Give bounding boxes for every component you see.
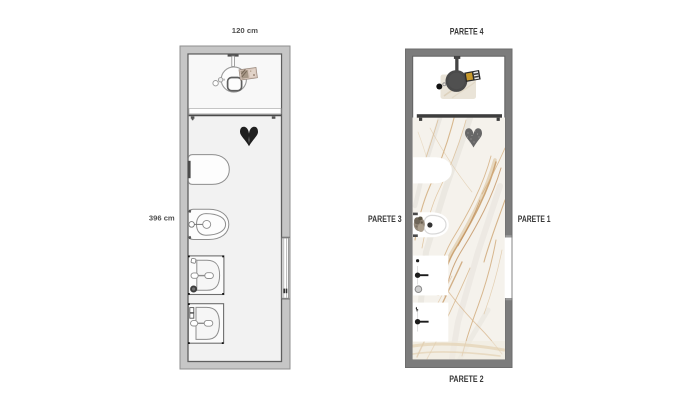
svg-text:PARETE 2: PARETE 2 bbox=[449, 374, 483, 384]
svg-text:PARETE 4: PARETE 4 bbox=[450, 27, 484, 37]
svg-text:PARETE 3: PARETE 3 bbox=[368, 214, 402, 224]
svg-text:396 cm: 396 cm bbox=[149, 214, 175, 223]
svg-text:120 cm: 120 cm bbox=[232, 26, 258, 35]
svg-text:PARETE 1: PARETE 1 bbox=[518, 214, 551, 224]
